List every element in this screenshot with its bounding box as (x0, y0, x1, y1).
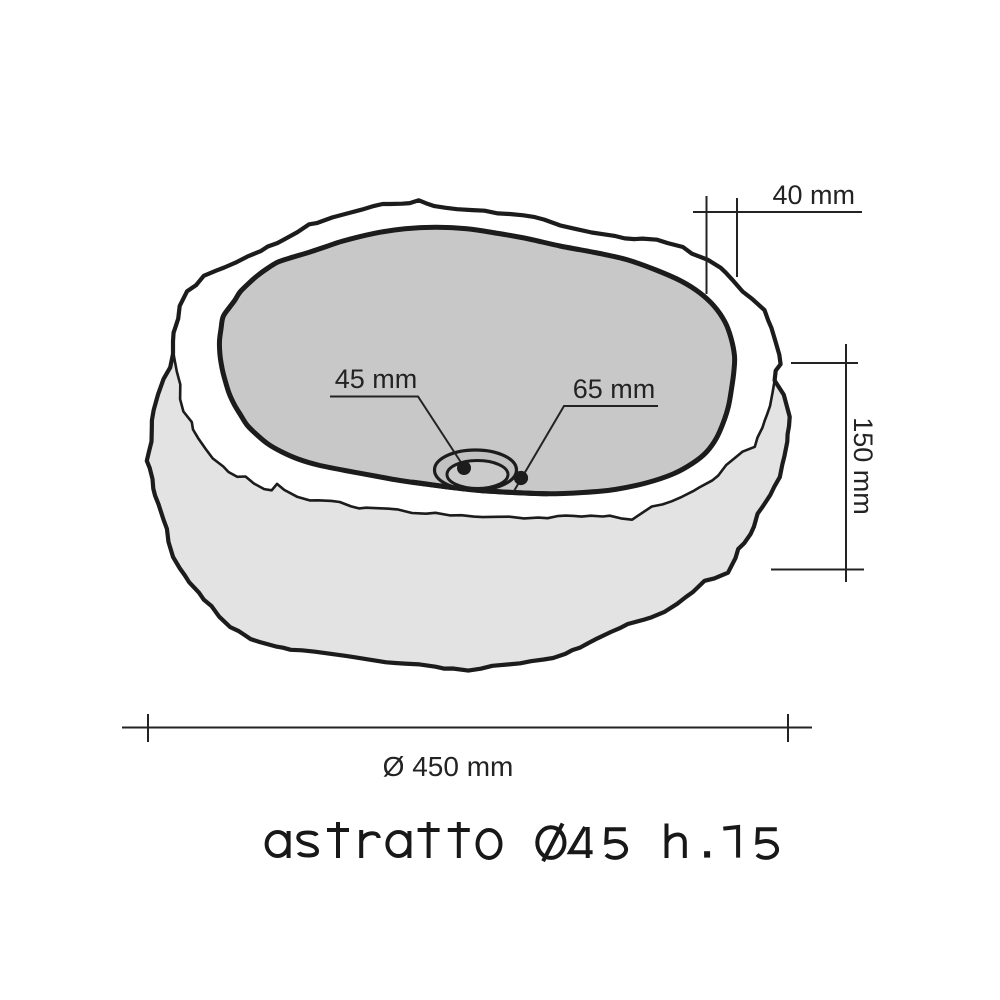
svg-text:40 mm: 40 mm (772, 180, 855, 210)
svg-text:65 mm: 65 mm (573, 374, 656, 404)
svg-text:45 mm: 45 mm (335, 364, 418, 394)
svg-text:Ø 450 mm: Ø 450 mm (383, 751, 514, 782)
svg-text:150 mm: 150 mm (848, 417, 878, 515)
